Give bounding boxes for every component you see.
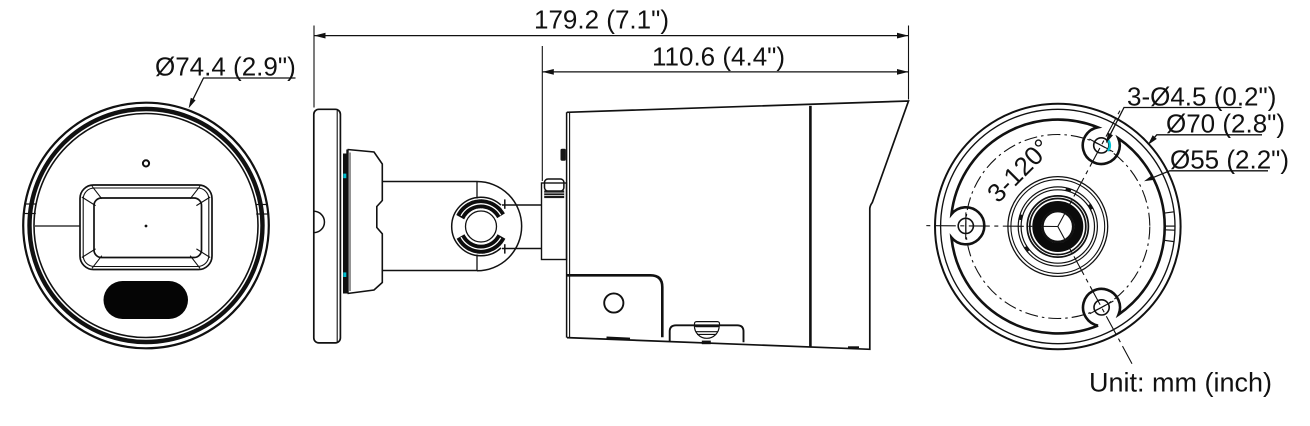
svg-text:3-120°: 3-120° [981, 133, 1057, 209]
svg-text:179.2 (7.1"): 179.2 (7.1") [534, 5, 669, 35]
svg-text:Ø70 (2.8"): Ø70 (2.8") [1166, 109, 1285, 139]
svg-text:Unit: mm (inch): Unit: mm (inch) [1089, 368, 1272, 398]
svg-text:Ø55 (2.2"): Ø55 (2.2") [1170, 145, 1289, 175]
svg-text:110.6 (4.4"): 110.6 (4.4") [652, 42, 785, 72]
svg-text:Ø74.4 (2.9"): Ø74.4 (2.9") [155, 52, 296, 82]
